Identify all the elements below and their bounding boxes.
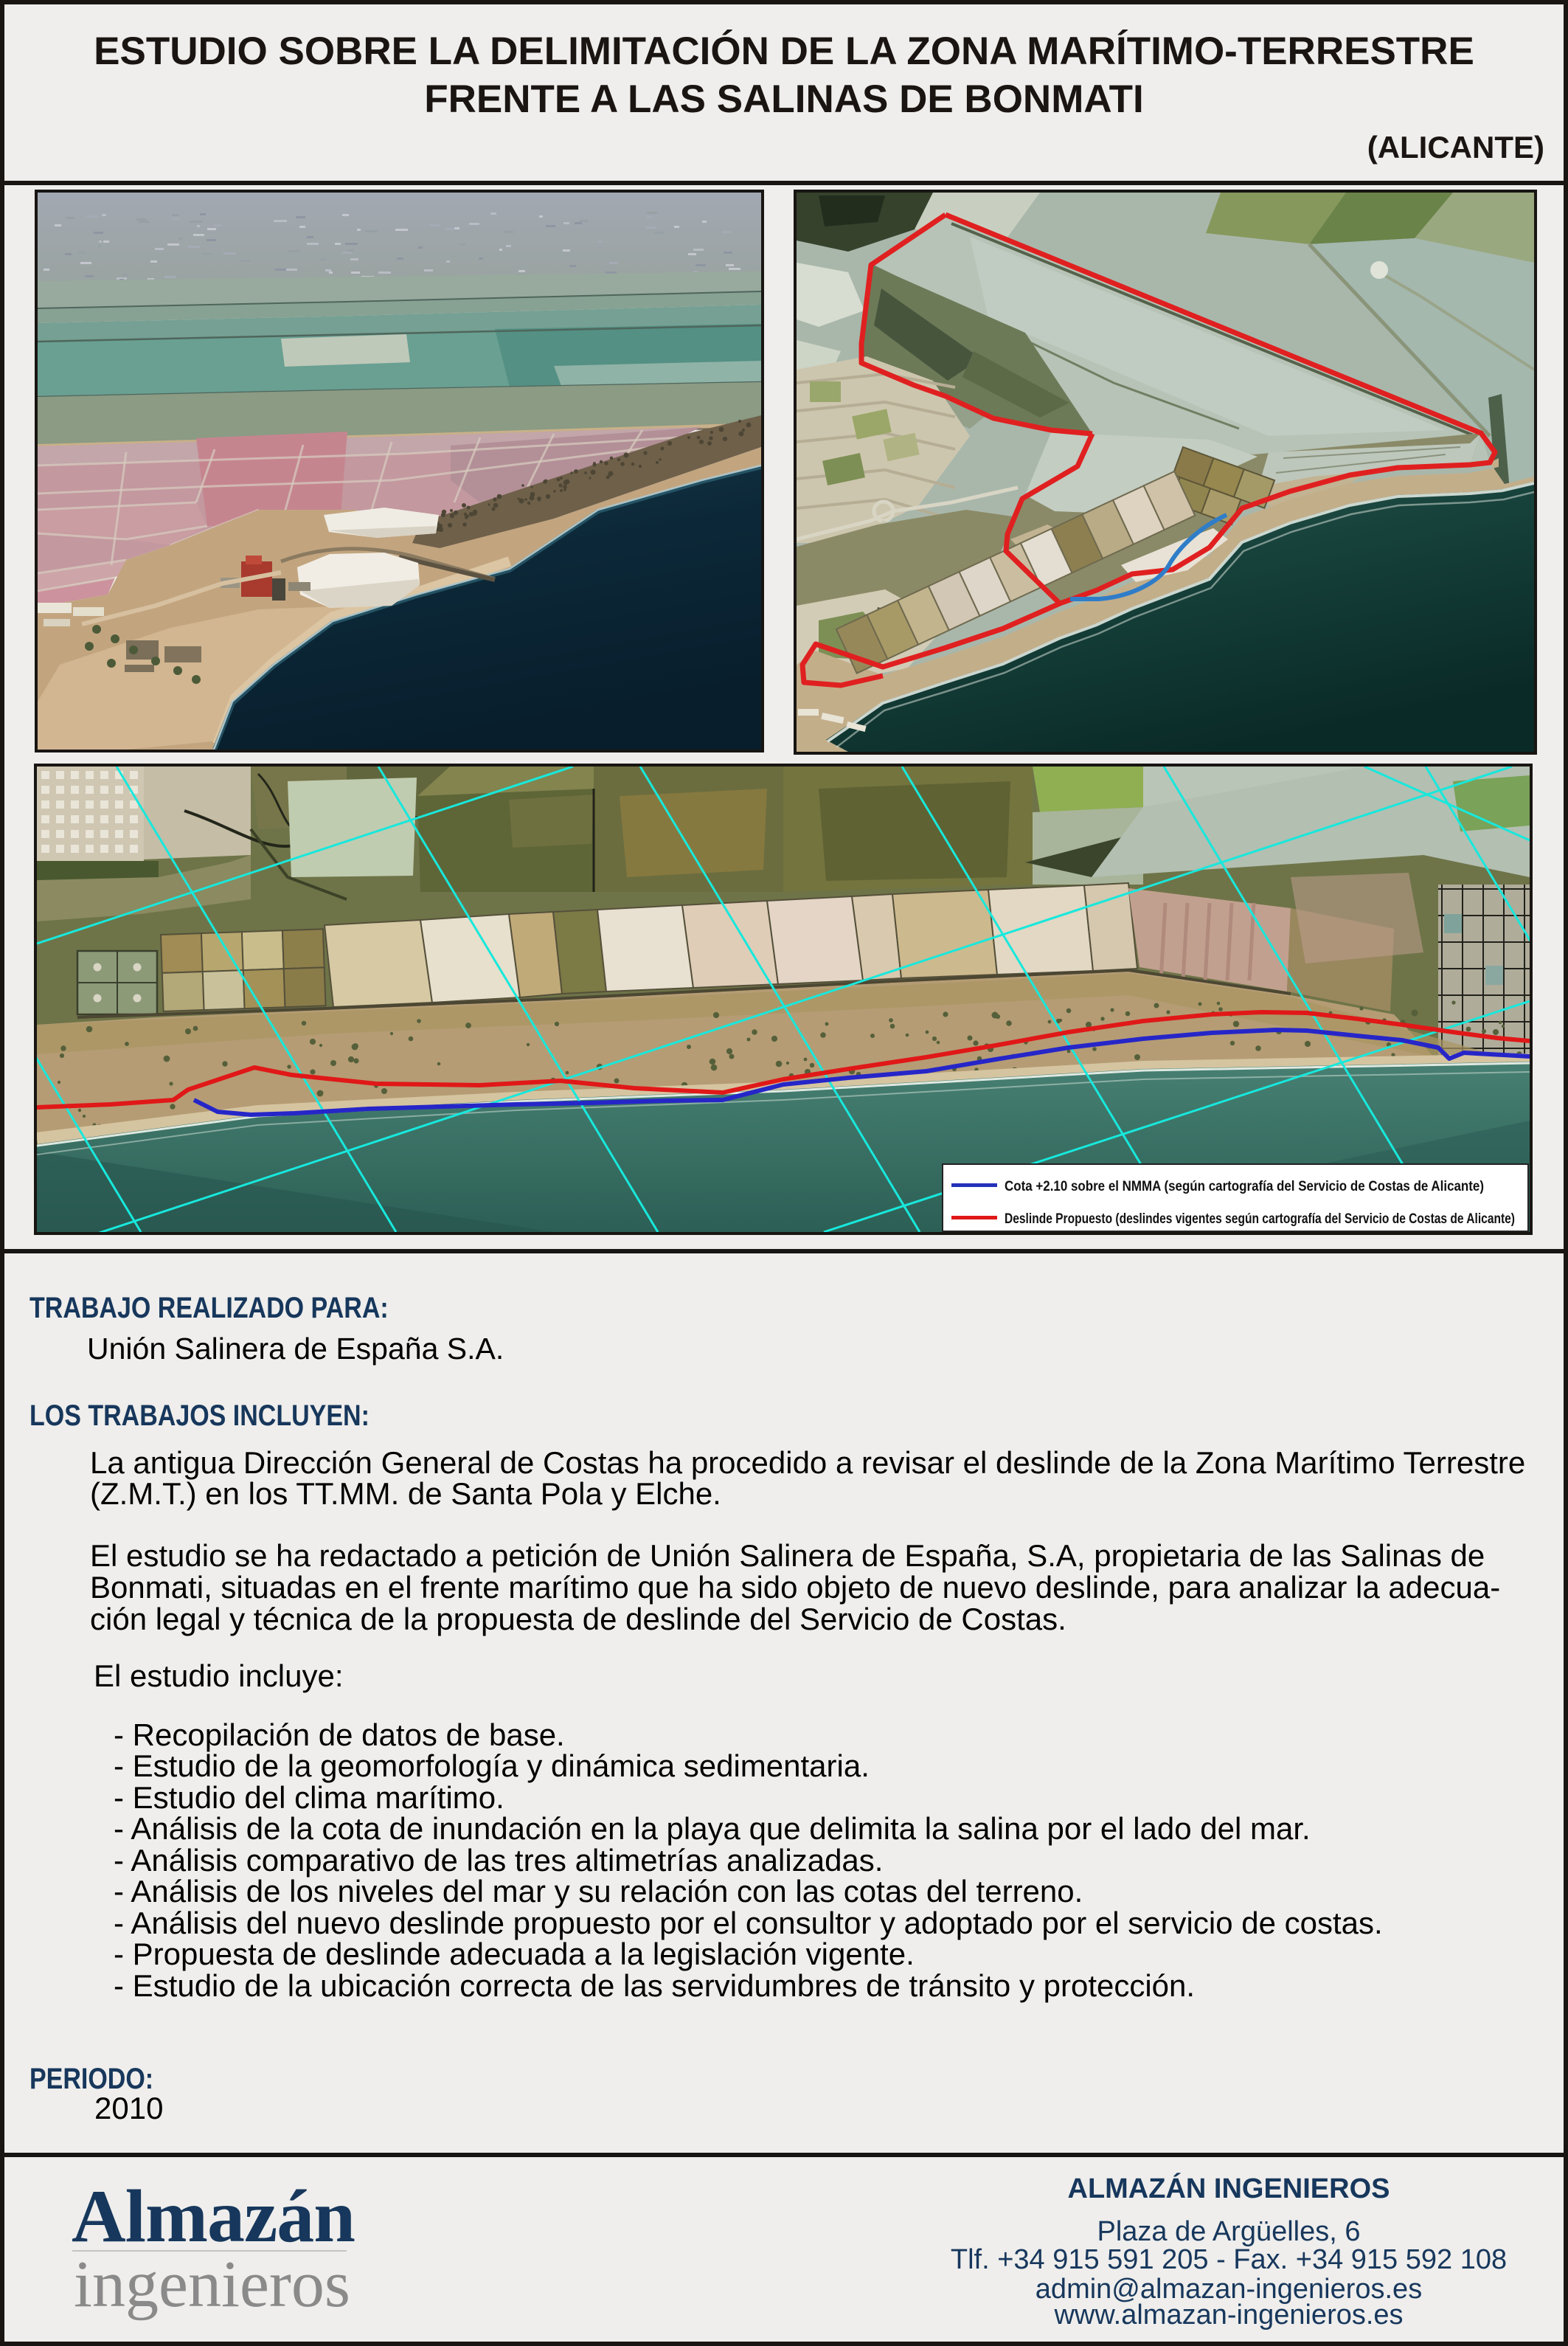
svg-text:Cota +2.10 sobre el NMMA (segú: Cota +2.10 sobre el NMMA (según cartogra… [1005, 1179, 1484, 1194]
svg-text:Deslinde Propuesto (deslindes: Deslinde Propuesto (deslindes vigentes s… [1005, 1211, 1515, 1227]
